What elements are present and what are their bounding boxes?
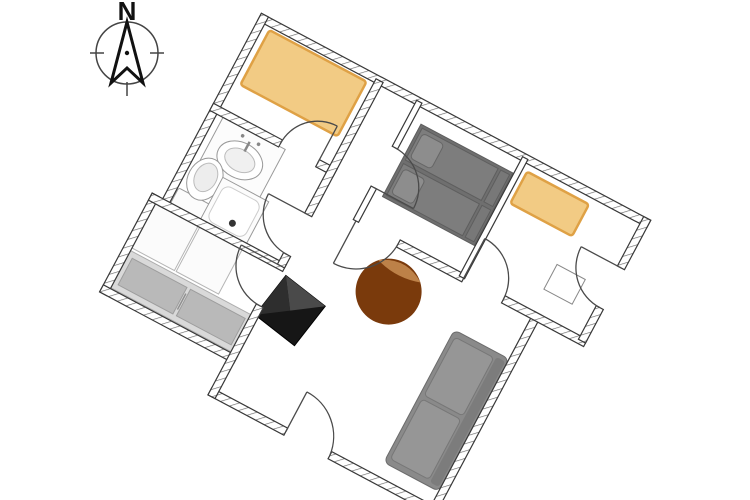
compass-north-label: N — [118, 0, 137, 26]
compass-rose: N — [90, 0, 164, 96]
floor-plan-canvas: N — [0, 0, 750, 500]
compass-center-dot — [125, 51, 129, 55]
apartment-plan — [81, 8, 651, 500]
floor-plan-page: N — [0, 0, 750, 500]
